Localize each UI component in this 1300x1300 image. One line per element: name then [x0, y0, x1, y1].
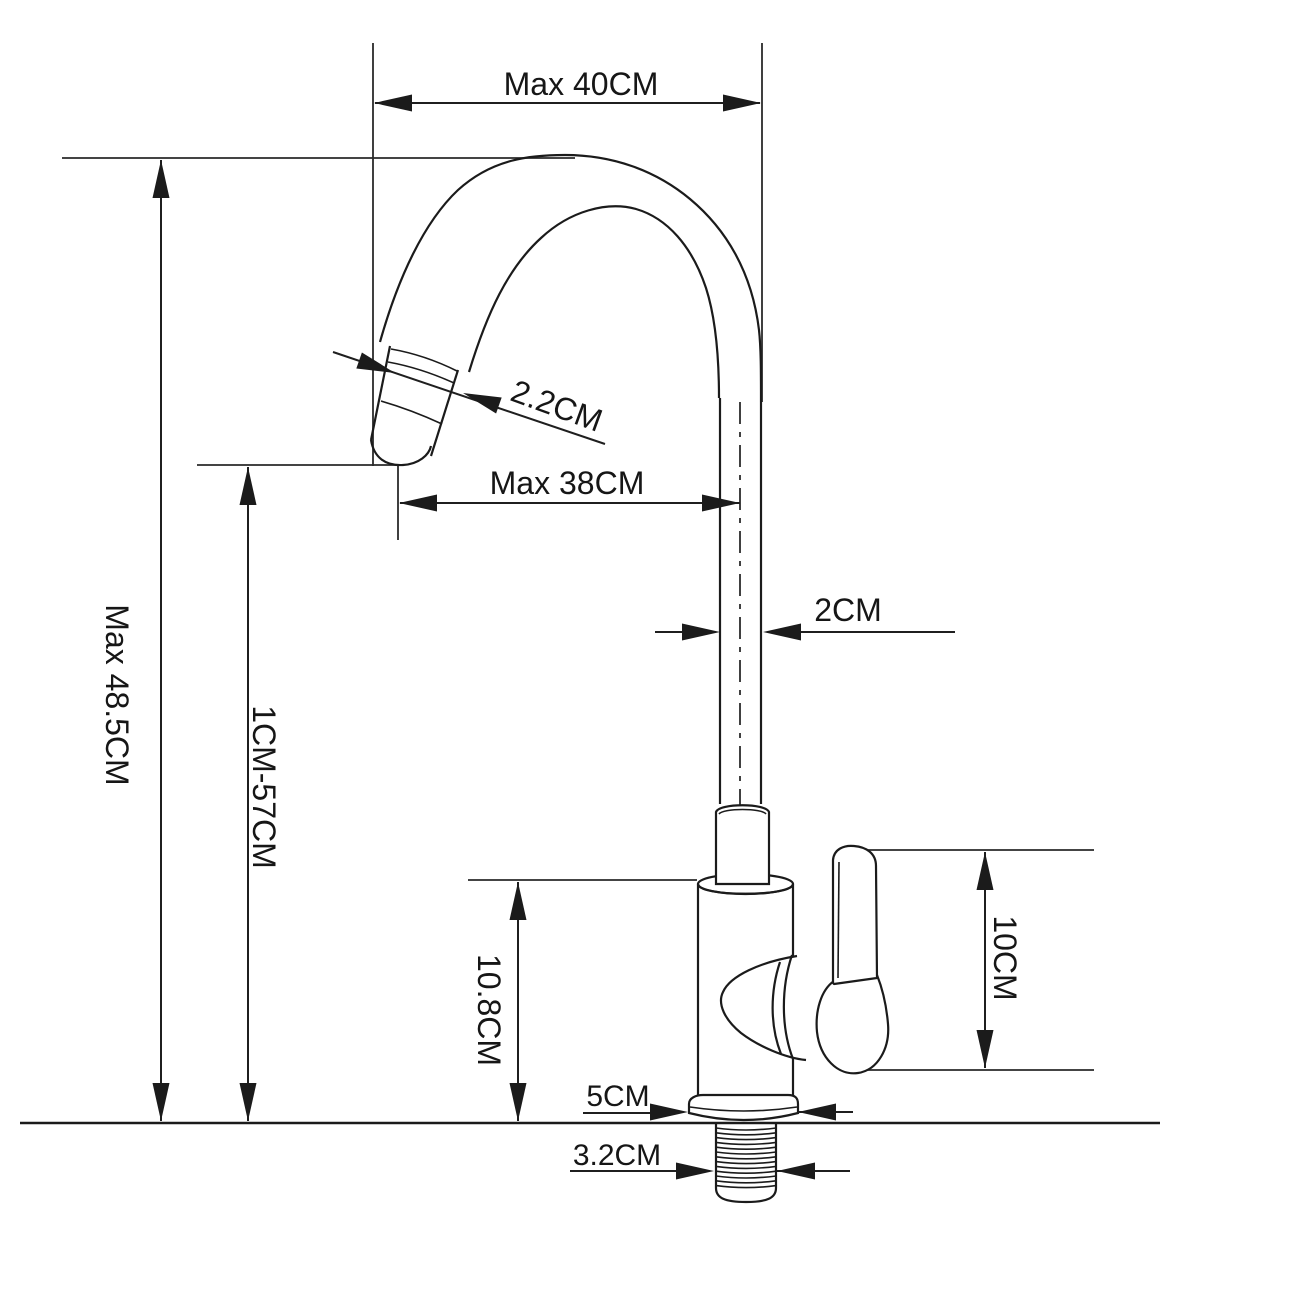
arrowhead-icon — [798, 1104, 836, 1121]
handle-stem-inner-line — [838, 862, 839, 978]
arrowhead-icon — [356, 352, 397, 381]
arrowhead-icon — [682, 624, 720, 641]
arrowhead-icon — [777, 1163, 815, 1180]
faucet-drawing — [371, 155, 888, 1202]
arrowhead-icon — [374, 95, 412, 112]
nozzle-ring-line — [391, 349, 457, 371]
handle-height-label: 10CM — [987, 915, 1023, 1000]
faucet-dimension-diagram: Max 40CM Max 48.5CM 1CM-57CM 2.2CM Max 3… — [0, 0, 1300, 1300]
faucet-thread-connector — [716, 1124, 776, 1202]
thread-lines — [716, 1128, 776, 1188]
faucet-base-flange — [689, 1095, 798, 1120]
spout-outer-edge — [380, 155, 761, 402]
base-diameter-label: 5CM — [586, 1080, 649, 1113]
nozzle-band-line — [381, 401, 442, 424]
overall-height-label: Max 48.5CM — [99, 604, 135, 785]
spout-tip-diameter-label: 2.2CM — [506, 373, 607, 439]
thread-bottom-cap — [716, 1188, 776, 1202]
handle-paddle — [817, 975, 889, 1073]
dim-handle-height: 10CM — [862, 850, 1094, 1070]
arrowhead-icon — [153, 160, 170, 198]
arrowhead-icon — [763, 624, 801, 641]
dim-spout-reach: Max 38CM — [398, 465, 740, 540]
faucet-pipe — [720, 398, 761, 812]
body-height-label: 10.8CM — [471, 954, 507, 1066]
body-front-rim — [698, 884, 793, 894]
spout-reach-label: Max 38CM — [490, 465, 645, 501]
collar-tube — [716, 805, 769, 884]
thread-diameter-label: 3.2CM — [573, 1139, 661, 1172]
faucet-nozzle — [371, 346, 458, 465]
dim-pipe-diameter: 2CM — [655, 592, 955, 641]
spout-inner-edge — [469, 206, 719, 398]
arrowhead-icon — [676, 1163, 714, 1180]
spout-height-range-label: 1CM-57CM — [246, 705, 282, 869]
dim-body-height: 10.8CM — [468, 880, 697, 1121]
arrowhead-icon — [240, 467, 257, 505]
flange-outline — [689, 1095, 798, 1120]
arrowhead-icon — [510, 1083, 527, 1121]
nozzle-tip-cap — [371, 440, 431, 465]
arrowhead-icon — [723, 95, 761, 112]
handle-cone — [721, 956, 806, 1060]
arrowhead-icon — [977, 852, 994, 890]
dim-spout-height-range: 1CM-57CM — [197, 465, 398, 1121]
arrowhead-icon — [460, 385, 501, 414]
arrowhead-icon — [977, 1030, 994, 1068]
dim-thread-diameter: 3.2CM — [570, 1139, 850, 1180]
arrowhead-icon — [399, 495, 437, 512]
arrowhead-icon — [240, 1083, 257, 1121]
faucet-collar — [716, 805, 769, 884]
spout-width-label: Max 40CM — [504, 66, 659, 102]
diagram-svg: Max 40CM Max 48.5CM 1CM-57CM 2.2CM Max 3… — [0, 0, 1300, 1300]
arrowhead-icon — [153, 1083, 170, 1121]
arrowhead-icon — [510, 882, 527, 920]
arrowhead-icon — [650, 1104, 688, 1121]
faucet-spout-arc — [380, 155, 761, 402]
pipe-diameter-label: 2CM — [814, 592, 882, 628]
